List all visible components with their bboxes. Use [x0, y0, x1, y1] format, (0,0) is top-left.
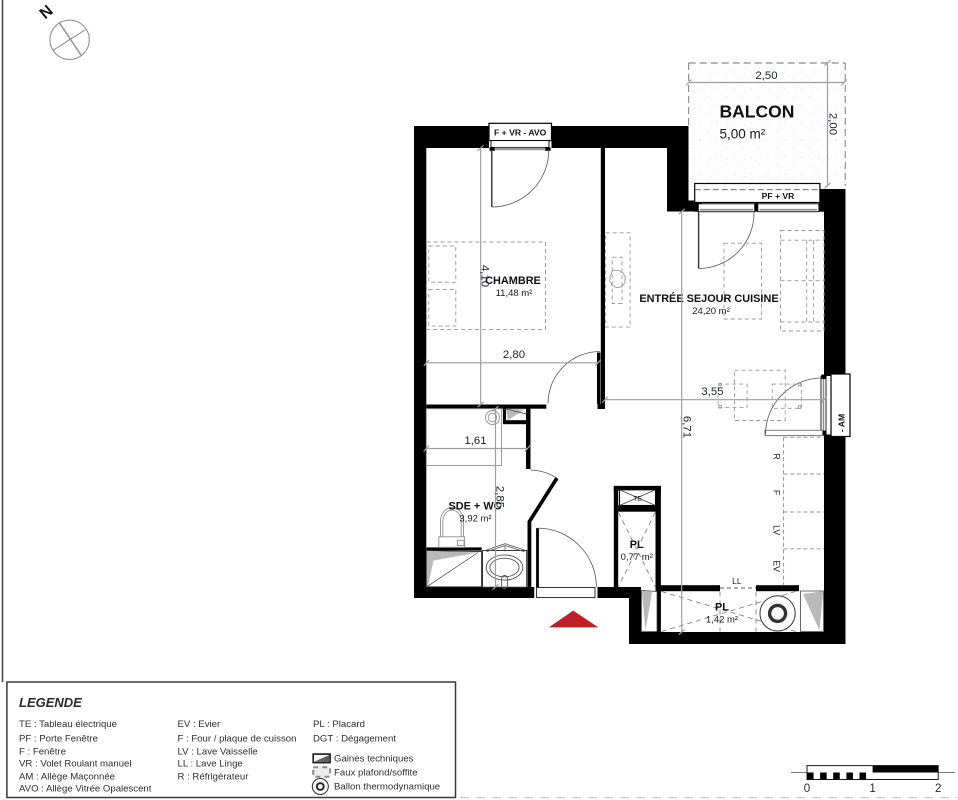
svg-text:AVO : Allège Vitrée Opalesce: AVO : Allège Vitrée Opalescent [19, 784, 152, 795]
svg-text:6,71: 6,71 [681, 416, 693, 438]
svg-text:DGT : Dégagement: DGT : Dégagement [313, 734, 396, 745]
svg-text:- AM: - AM [837, 414, 847, 432]
svg-text:2: 2 [935, 783, 941, 795]
svg-text:Gaines techniques: Gaines techniques [334, 754, 414, 765]
svg-text:1: 1 [869, 783, 875, 795]
svg-text:4,10: 4,10 [479, 265, 491, 287]
svg-text:2,85: 2,85 [494, 486, 506, 508]
svg-text:11,48 m²: 11,48 m² [496, 288, 533, 299]
svg-text:PF + VR: PF + VR [762, 191, 796, 201]
svg-text:ENTRÉE SEJOUR CUISINE: ENTRÉE SEJOUR CUISINE [639, 292, 778, 305]
svg-text:EV : Evier: EV : Evier [178, 719, 221, 730]
svg-text:LEGENDE: LEGENDE [19, 695, 82, 710]
svg-text:PF : Porte Fenêtre: PF : Porte Fenêtre [19, 734, 98, 745]
svg-text:PL: PL [715, 602, 729, 614]
svg-text:LL : Lave Linge: LL : Lave Linge [178, 759, 243, 770]
svg-text:R: R [772, 453, 782, 459]
svg-text:2,80: 2,80 [503, 349, 525, 361]
svg-text:TE : Tableau électrique: TE : Tableau électrique [19, 719, 117, 730]
svg-text:0,77 m²: 0,77 m² [621, 552, 653, 563]
svg-text:3,55: 3,55 [701, 386, 723, 398]
svg-text:N: N [37, 2, 57, 22]
svg-text:BALCON: BALCON [720, 102, 795, 122]
svg-text:CHAMBRE: CHAMBRE [485, 275, 541, 287]
svg-text:TE: TE [633, 496, 642, 503]
svg-text:F: F [772, 490, 782, 496]
svg-text:F : Fenêtre: F : Fenêtre [19, 747, 66, 758]
svg-text:EV: EV [772, 560, 782, 572]
svg-text:Faux plafond/soffite: Faux plafond/soffite [334, 768, 418, 779]
svg-text:VR : Volet Roulant manuel: VR : Volet Roulant manuel [19, 759, 132, 770]
svg-text:24,20 m²: 24,20 m² [692, 306, 730, 317]
svg-text:LV : Lave Vaisselle: LV : Lave Vaisselle [178, 747, 258, 758]
svg-text:LL: LL [732, 576, 742, 586]
svg-text:F + VR - AVO: F + VR - AVO [494, 128, 547, 138]
svg-text:AM : Allège Maçonnée: AM : Allège Maçonnée [19, 772, 115, 783]
svg-text:3,92 m²: 3,92 m² [459, 514, 491, 525]
svg-text:PL: PL [630, 539, 644, 551]
svg-text:2,00: 2,00 [827, 113, 839, 135]
svg-text:5,00 m²: 5,00 m² [720, 127, 766, 142]
svg-text:LV: LV [772, 525, 782, 535]
svg-text:1,42 m²: 1,42 m² [706, 615, 738, 626]
svg-text:R : Réfrigérateur: R : Réfrigérateur [178, 772, 250, 783]
svg-text:0: 0 [804, 783, 810, 795]
svg-text:Ballon thermodynamique: Ballon thermodynamique [334, 782, 440, 793]
svg-text:PL : Placard: PL : Placard [313, 719, 365, 730]
svg-text:1,61: 1,61 [464, 435, 486, 447]
svg-text:2,50: 2,50 [755, 70, 777, 82]
svg-text:F : Four / plaque de cuisson: F : Four / plaque de cuisson [178, 734, 297, 745]
